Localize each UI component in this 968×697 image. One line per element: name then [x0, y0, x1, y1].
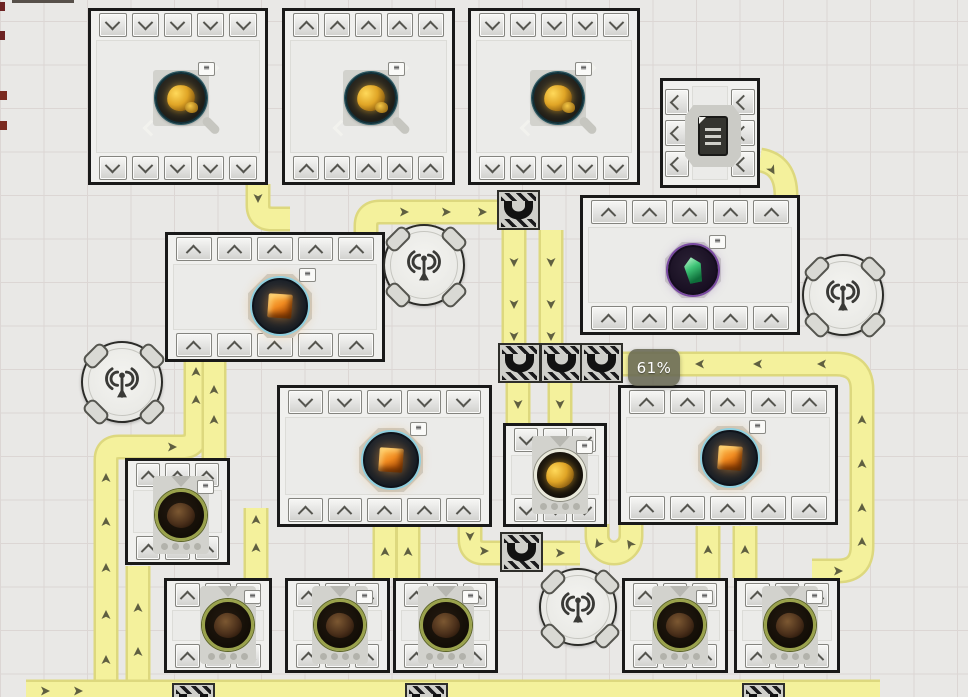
chevron-up-icon: [227, 340, 243, 356]
machine-cube_orange: ≡: [252, 278, 308, 334]
antenna-leg: [539, 568, 569, 598]
antenna-body: [539, 568, 617, 646]
io-connector: [791, 390, 827, 414]
tunnel-mouth-icon: [542, 354, 581, 374]
machine-info-badge-icon: ≡: [709, 235, 726, 249]
chevron-down-icon: [608, 14, 624, 30]
io-connector: [338, 333, 374, 357]
antenna-leg: [802, 310, 832, 340]
orange-cube-icon: [717, 445, 743, 471]
antenna-icon: [556, 585, 600, 629]
io-connector: [293, 13, 319, 37]
chevron-down-icon: [337, 391, 353, 407]
io-connector: [197, 156, 225, 180]
dark-ore-icon: [665, 611, 695, 639]
io-connector: [629, 390, 665, 414]
chevron-up-icon: [361, 163, 377, 179]
antenna-beacon[interactable]: [539, 568, 617, 646]
machine-smelter_dark: ≡: [654, 599, 706, 651]
io-connector: [217, 333, 253, 357]
tunnel-tile[interactable]: [497, 190, 540, 230]
io-connector: [99, 156, 127, 180]
antenna-body: [383, 224, 465, 306]
io-connector: [710, 390, 746, 414]
io-connector: [355, 13, 381, 37]
io-connector: [132, 13, 160, 37]
machine-info-badge-icon: ≡: [410, 422, 427, 436]
chevron-up-icon: [423, 20, 439, 36]
io-connector: [753, 200, 789, 224]
pad-notch-icon: [780, 586, 800, 597]
slot-dots-icon: [320, 653, 360, 660]
chevron-down-icon: [170, 14, 186, 30]
chevron-left-icon: [669, 156, 685, 172]
dark-ore-icon: [431, 611, 461, 639]
ore-porthole: ≡: [155, 489, 207, 541]
crystal-porthole: ≡: [363, 432, 419, 488]
ore-porthole: ≡: [314, 599, 366, 651]
chevron-down-icon: [138, 157, 154, 173]
io-connector: [176, 333, 212, 357]
machine-info-badge-icon: ≡: [575, 62, 592, 76]
tunnel-stripes-icon: [504, 535, 539, 543]
chevron-up-icon: [723, 207, 739, 223]
tunnel-tile[interactable]: [500, 532, 543, 572]
tunnel-stripes-icon: [176, 686, 211, 694]
chevron-up-icon: [601, 313, 617, 329]
io-connector: [229, 13, 257, 37]
tunnel-mouth-icon: [500, 354, 539, 374]
tunnel-mouth-icon: [502, 543, 541, 563]
chevron-up-icon: [416, 505, 432, 521]
io-connector: [479, 13, 505, 37]
chevron-up-icon: [377, 505, 393, 521]
chevron-up-icon: [361, 20, 377, 36]
io-connector: [672, 200, 708, 224]
throughput-badge: 61%: [628, 349, 680, 386]
antenna-body: [81, 341, 163, 423]
io-connector: [229, 156, 257, 180]
tunnel-tile[interactable]: [405, 683, 448, 697]
chevron-down-icon: [377, 391, 393, 407]
io-connector: [407, 390, 442, 414]
io-connector: [665, 89, 689, 115]
slot-dots-icon: [660, 653, 700, 660]
tunnel-stripes-icon: [502, 346, 537, 354]
io-connector: [713, 200, 749, 224]
building-crystal-plant[interactable]: ≡: [580, 195, 800, 335]
gold-ore-icon: [375, 102, 388, 113]
machine-info-badge-icon: ≡: [198, 62, 215, 76]
io-connector: [541, 13, 567, 37]
machine-info-badge-icon: ≡: [244, 590, 261, 604]
machine-storage: [698, 116, 728, 156]
machine-cube_orange: ≡: [363, 432, 419, 488]
io-connector: [572, 13, 598, 37]
chevron-down-icon: [298, 391, 314, 407]
chevron-up-icon: [680, 503, 696, 519]
chevron-down-icon: [484, 14, 500, 30]
machine-smelter_dark: ≡: [155, 489, 207, 541]
io-connector: [298, 333, 334, 357]
io-connector: [672, 306, 708, 330]
chevron-up-icon: [642, 313, 658, 329]
io-connector: [603, 156, 629, 180]
chevron-up-icon: [642, 207, 658, 223]
map-edge-mark: [0, 121, 7, 130]
ore-porthole: ≡: [764, 599, 816, 651]
antenna-leg: [137, 397, 167, 427]
machine-smelter_dark: ≡: [420, 599, 472, 651]
machine-extractor_gold: ≡: [532, 72, 584, 124]
chevron-up-icon: [763, 207, 779, 223]
building-storage[interactable]: [660, 78, 760, 188]
chevron-up-icon: [392, 163, 408, 179]
building-smelter-b[interactable]: ≡: [164, 578, 272, 673]
tunnel-tile[interactable]: [540, 343, 583, 383]
antenna-leg: [81, 397, 111, 427]
chevron-down-icon: [515, 14, 531, 30]
chevron-down-icon: [235, 157, 251, 173]
chevron-down-icon: [456, 391, 472, 407]
ore-porthole: ≡: [345, 72, 397, 124]
chevron-left-icon: [669, 94, 685, 110]
slot-dots-icon: [208, 653, 248, 660]
chevron-down-icon: [416, 391, 432, 407]
dark-ore-icon: [213, 611, 243, 639]
io-connector: [629, 496, 665, 520]
chevron-up-icon: [298, 163, 314, 179]
building-extractor-3[interactable]: ≡: [468, 8, 640, 185]
crystal-porthole: ≡: [668, 245, 718, 295]
tunnel-mouth-icon: [499, 201, 538, 221]
building-smelter-gold[interactable]: ≡: [503, 423, 607, 527]
chevron-up-icon: [330, 163, 346, 179]
chevron-up-icon: [337, 505, 353, 521]
chevron-down-icon: [608, 157, 624, 173]
chevron-left-icon: [735, 94, 751, 110]
io-connector: [407, 498, 442, 522]
io-connector: [288, 498, 323, 522]
slot-dots-icon: [161, 543, 201, 550]
pad-notch-icon: [330, 586, 350, 597]
antenna-leg: [592, 621, 622, 651]
antenna-leg: [858, 254, 888, 284]
storage-rack-icon: [698, 116, 728, 156]
io-connector: [670, 390, 706, 414]
machine-info-badge-icon: ≡: [696, 590, 713, 604]
io-connector: [670, 496, 706, 520]
chevron-up-icon: [638, 590, 654, 606]
green-crystal-icon: [682, 256, 704, 285]
building-extractor-1[interactable]: ≡: [88, 8, 268, 185]
chevron-down-icon: [577, 157, 593, 173]
antenna-icon: [402, 243, 446, 287]
chevron-up-icon: [330, 20, 346, 36]
machine-info-badge-icon: ≡: [749, 420, 766, 434]
io-connector: [418, 13, 444, 37]
pad-notch-icon: [171, 476, 191, 487]
machine-info-badge-icon: ≡: [388, 62, 405, 76]
chevron-up-icon: [456, 505, 472, 521]
chevron-up-icon: [348, 244, 364, 260]
chevron-up-icon: [186, 340, 202, 356]
chevron-down-icon: [203, 157, 219, 173]
pad-notch-icon: [670, 586, 690, 597]
machine-smelter_dark: ≡: [314, 599, 366, 651]
chevron-up-icon: [186, 244, 202, 260]
io-connector: [288, 390, 323, 414]
slot-dots-icon: [540, 503, 580, 510]
map-edge-mark: [0, 31, 5, 40]
tunnel-tile[interactable]: [580, 343, 623, 383]
machine-info-badge-icon: ≡: [299, 268, 316, 282]
antenna-beacon[interactable]: [81, 341, 163, 423]
machine-info-badge-icon: ≡: [197, 480, 214, 494]
io-connector: [418, 156, 444, 180]
chevron-up-icon: [720, 503, 736, 519]
io-connector: [572, 156, 598, 180]
dark-ore-icon: [775, 611, 805, 639]
io-connector: [791, 496, 827, 520]
chevron-up-icon: [761, 503, 777, 519]
chevron-up-icon: [723, 313, 739, 329]
machine-info-badge-icon: ≡: [576, 440, 593, 454]
tunnel-stripes-icon: [584, 346, 619, 354]
io-connector: [175, 644, 200, 668]
io-connector: [257, 237, 293, 261]
antenna-leg: [858, 310, 888, 340]
io-connector: [324, 13, 350, 37]
io-connector: [328, 390, 363, 414]
io-connector: [753, 306, 789, 330]
chevron-up-icon: [298, 20, 314, 36]
map-edge-mark: [0, 2, 5, 11]
chevron-up-icon: [180, 651, 196, 667]
chevron-up-icon: [720, 397, 736, 413]
orange-cube-icon: [378, 447, 404, 473]
chevron-up-icon: [267, 340, 283, 356]
io-connector: [338, 237, 374, 261]
io-connector: [387, 13, 413, 37]
io-connector: [197, 13, 225, 37]
io-connector: [591, 306, 627, 330]
gold-ore-icon: [185, 102, 198, 113]
io-connector: [510, 156, 536, 180]
io-connector: [751, 496, 787, 520]
chevron-down-icon: [105, 14, 121, 30]
pad-notch-icon: [550, 436, 570, 447]
machine-cube_orange: ≡: [702, 430, 758, 486]
io-connector: [713, 306, 749, 330]
pad-notch-icon: [436, 586, 456, 597]
gold-ore-icon: [544, 460, 575, 490]
building-smelter-d[interactable]: ≡: [393, 578, 498, 673]
chevron-up-icon: [680, 397, 696, 413]
io-connector: [328, 498, 363, 522]
building-extractor-2[interactable]: ≡: [282, 8, 455, 185]
chevron-down-icon: [105, 157, 121, 173]
slot-dots-icon: [770, 653, 810, 660]
io-connector: [355, 156, 381, 180]
machine-smelter_gold: ≡: [534, 449, 586, 501]
building-smelter-f[interactable]: ≡: [734, 578, 840, 673]
io-connector: [367, 498, 402, 522]
io-connector: [541, 156, 567, 180]
orange-cube-icon: [267, 293, 293, 319]
ore-porthole: ≡: [534, 449, 586, 501]
chevron-up-icon: [348, 340, 364, 356]
antenna-leg: [439, 224, 469, 254]
antenna-leg: [81, 341, 111, 371]
antenna-leg: [539, 621, 569, 651]
factory-map: ≡≡≡≡≡≡≡≡≡≡≡≡≡≡ 61%: [0, 0, 968, 697]
antenna-icon: [100, 360, 144, 404]
tunnel-stripes-icon: [746, 686, 781, 694]
io-connector: [217, 237, 253, 261]
chevron-up-icon: [682, 313, 698, 329]
io-connector: [164, 156, 192, 180]
pad-notch-icon: [218, 586, 238, 597]
io-connector: [298, 237, 334, 261]
io-connector: [99, 13, 127, 37]
antenna-icon: [821, 273, 865, 317]
crystal-porthole: ≡: [252, 278, 308, 334]
chevron-up-icon: [227, 244, 243, 260]
antenna-leg: [592, 568, 622, 598]
machine-extractor_gold: ≡: [345, 72, 397, 124]
io-connector: [510, 13, 536, 37]
throughput-value: 61%: [637, 359, 672, 377]
antenna-beacon[interactable]: [802, 254, 884, 336]
machine-info-badge-icon: ≡: [462, 590, 479, 604]
chevron-down-icon: [170, 157, 186, 173]
io-connector: [710, 496, 746, 520]
building-smelter-a[interactable]: ≡: [125, 458, 230, 565]
io-connector: [293, 156, 319, 180]
antenna-body: [802, 254, 884, 336]
ore-porthole: ≡: [532, 72, 584, 124]
chevron-up-icon: [761, 397, 777, 413]
machine-extractor_gold: ≡: [155, 72, 207, 124]
machine-smelter_dark: ≡: [202, 599, 254, 651]
chevron-up-icon: [682, 207, 698, 223]
io-connector: [603, 13, 629, 37]
chevron-left-icon: [669, 125, 685, 141]
io-connector: [751, 390, 787, 414]
io-connector: [591, 200, 627, 224]
ore-porthole: ≡: [202, 599, 254, 651]
antenna-leg: [383, 224, 413, 254]
io-connector: [175, 583, 200, 607]
chevron-up-icon: [601, 207, 617, 223]
io-connector: [632, 200, 668, 224]
ore-porthole: ≡: [155, 72, 207, 124]
io-connector: [387, 156, 413, 180]
chevron-down-icon: [577, 14, 593, 30]
antenna-leg: [439, 280, 469, 310]
machine-info-badge-icon: ≡: [356, 590, 373, 604]
chevron-up-icon: [308, 340, 324, 356]
tile-layer: ≡≡≡≡≡≡≡≡≡≡≡≡≡≡: [0, 0, 968, 697]
chevron-up-icon: [423, 163, 439, 179]
chevron-up-icon: [267, 244, 283, 260]
chevron-up-icon: [763, 313, 779, 329]
antenna-leg: [802, 254, 832, 284]
chevron-up-icon: [298, 505, 314, 521]
chevron-down-icon: [546, 157, 562, 173]
chevron-up-icon: [308, 244, 324, 260]
io-connector: [446, 498, 481, 522]
map-edge-mark: [12, 0, 74, 3]
chevron-down-icon: [203, 14, 219, 30]
io-connector: [446, 390, 481, 414]
chevron-down-icon: [515, 157, 531, 173]
chevron-up-icon: [392, 20, 408, 36]
io-connector: [632, 306, 668, 330]
tunnel-mouth-icon: [582, 354, 621, 374]
ore-porthole: ≡: [654, 599, 706, 651]
chevron-down-icon: [138, 14, 154, 30]
building-processor-1[interactable]: ≡: [165, 232, 385, 362]
map-edge-mark: [0, 91, 7, 100]
tunnel-tile[interactable]: [742, 683, 785, 697]
building-processor-3[interactable]: ≡: [618, 385, 838, 525]
tunnel-stripes-icon: [544, 346, 579, 354]
tunnel-stripes-icon: [501, 193, 536, 201]
tunnel-stripes-icon: [409, 686, 444, 694]
io-connector: [176, 237, 212, 261]
crystal-porthole: ≡: [702, 430, 758, 486]
machine-crystal_green: ≡: [668, 245, 718, 295]
chevron-down-icon: [546, 14, 562, 30]
chevron-up-icon: [801, 397, 817, 413]
dark-ore-icon: [166, 501, 196, 529]
chevron-down-icon: [484, 157, 500, 173]
dark-ore-icon: [325, 611, 355, 639]
antenna-leg: [137, 341, 167, 371]
tunnel-tile[interactable]: [172, 683, 215, 697]
ore-porthole: ≡: [420, 599, 472, 651]
gold-ore-icon: [562, 102, 575, 113]
chevron-up-icon: [801, 503, 817, 519]
antenna-beacon[interactable]: [383, 224, 465, 306]
io-connector: [132, 156, 160, 180]
chevron-up-icon: [639, 397, 655, 413]
building-processor-2[interactable]: ≡: [277, 385, 492, 527]
tunnel-tile[interactable]: [498, 343, 541, 383]
chevron-down-icon: [235, 14, 251, 30]
chevron-up-icon: [180, 590, 196, 606]
io-connector: [367, 390, 402, 414]
antenna-leg: [383, 280, 413, 310]
machine-smelter_dark: ≡: [764, 599, 816, 651]
io-connector: [164, 13, 192, 37]
chevron-up-icon: [638, 651, 654, 667]
io-connector: [479, 156, 505, 180]
slot-dots-icon: [426, 653, 466, 660]
chevron-up-icon: [639, 503, 655, 519]
io-connector: [324, 156, 350, 180]
building-smelter-c[interactable]: ≡: [285, 578, 390, 673]
building-smelter-e[interactable]: ≡: [622, 578, 728, 673]
machine-info-badge-icon: ≡: [806, 590, 823, 604]
